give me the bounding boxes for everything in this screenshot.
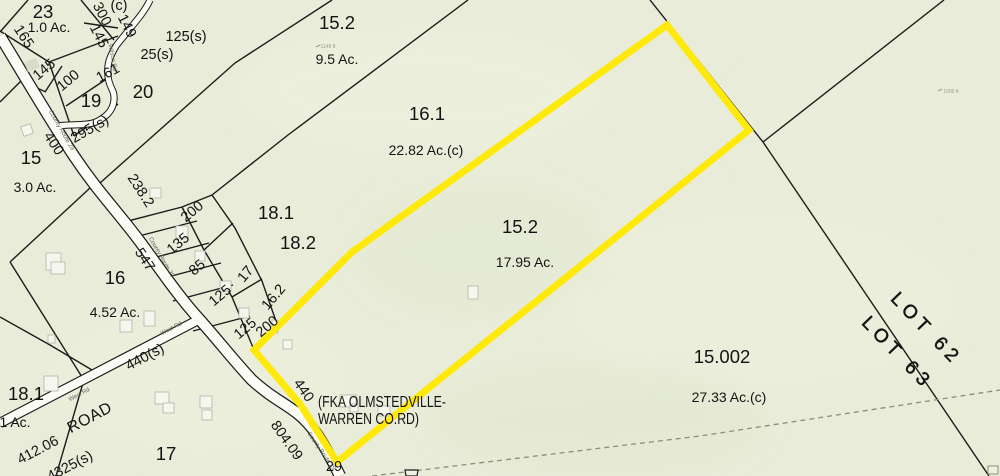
svg-text:18.2: 18.2 bbox=[280, 232, 316, 253]
svg-text:4.52 Ac.: 4.52 Ac. bbox=[90, 304, 141, 320]
svg-text:1 Ac.: 1 Ac. bbox=[0, 414, 31, 430]
svg-text:22.82 Ac.(c): 22.82 Ac.(c) bbox=[389, 142, 464, 158]
svg-text:15: 15 bbox=[21, 147, 42, 168]
svg-text:3.0 Ac.: 3.0 Ac. bbox=[14, 179, 57, 195]
svg-text:17: 17 bbox=[156, 443, 177, 464]
svg-text:16: 16 bbox=[105, 267, 126, 288]
svg-text:25(s): 25(s) bbox=[140, 47, 173, 63]
svg-text:1149 ft: 1149 ft bbox=[321, 44, 337, 50]
svg-text:17.95 Ac.: 17.95 Ac. bbox=[496, 254, 554, 270]
svg-text:(c): (c) bbox=[111, 0, 128, 14]
svg-text:1.0 Ac.: 1.0 Ac. bbox=[28, 19, 71, 35]
svg-text:15.2: 15.2 bbox=[502, 216, 538, 237]
svg-text:15.002: 15.002 bbox=[694, 346, 751, 367]
svg-text:27.33 Ac.(c): 27.33 Ac.(c) bbox=[692, 389, 767, 405]
svg-text:19: 19 bbox=[81, 90, 102, 111]
svg-text:WARREN CO.RD): WARREN CO.RD) bbox=[318, 411, 419, 428]
svg-text:15.2: 15.2 bbox=[319, 12, 355, 33]
svg-text:125(s): 125(s) bbox=[165, 29, 206, 45]
svg-text:20: 20 bbox=[133, 81, 154, 102]
svg-text:(FKA OLMSTEDVILLE-: (FKA OLMSTEDVILLE- bbox=[318, 394, 446, 411]
svg-text:1000 ft: 1000 ft bbox=[943, 89, 959, 95]
svg-text:16.1: 16.1 bbox=[409, 103, 445, 124]
svg-text:18.1: 18.1 bbox=[258, 202, 294, 223]
svg-text:18.1: 18.1 bbox=[8, 383, 44, 404]
svg-text:9.5 Ac.: 9.5 Ac. bbox=[316, 51, 359, 67]
